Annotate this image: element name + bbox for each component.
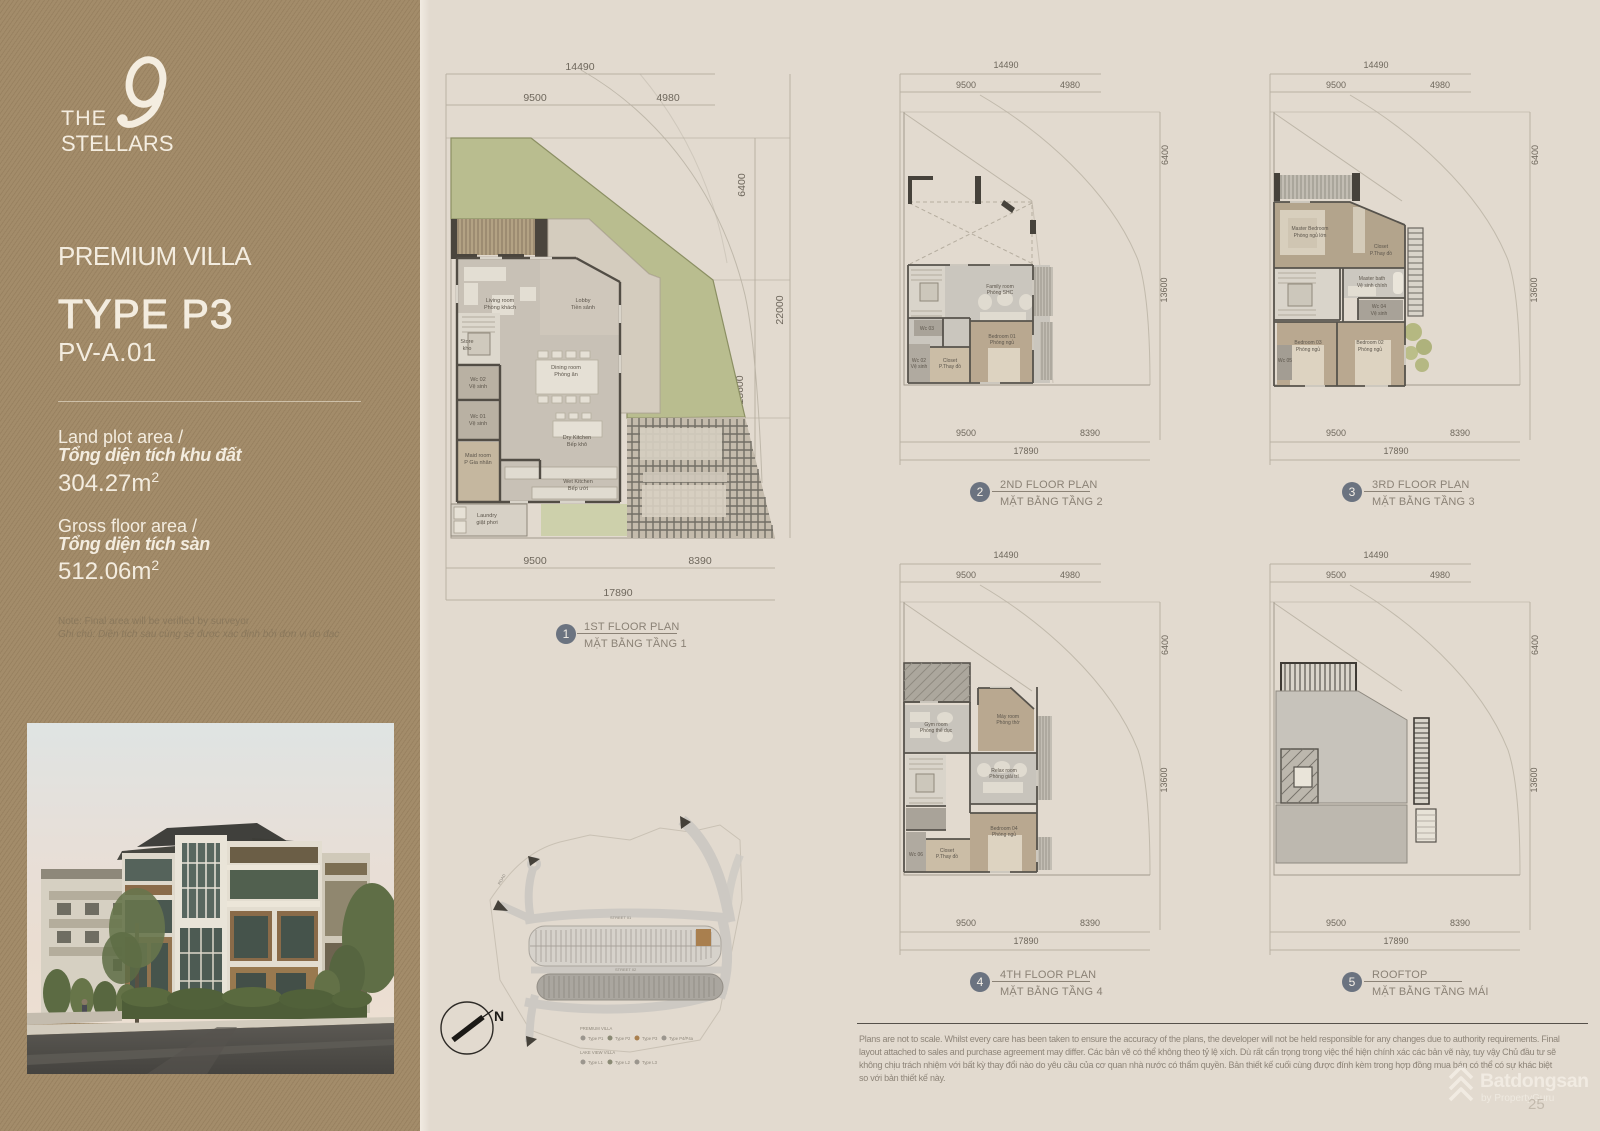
svg-text:Phòng ngủ: Phòng ngủ	[1358, 346, 1382, 353]
svg-text:17890: 17890	[603, 587, 632, 599]
svg-text:14490: 14490	[993, 550, 1018, 560]
svg-text:Bedroom 03: Bedroom 03	[1294, 340, 1321, 346]
svg-text:N: N	[494, 1008, 504, 1024]
svg-text:Vệ sinh: Vệ sinh	[469, 421, 487, 427]
svg-text:9500: 9500	[956, 570, 976, 580]
svg-text:Wc 02: Wc 02	[470, 377, 486, 383]
svg-text:17890: 17890	[1383, 936, 1408, 946]
svg-text:9500: 9500	[956, 918, 976, 928]
svg-text:8390: 8390	[1080, 428, 1100, 438]
svg-text:Type L2: Type L2	[615, 1060, 631, 1065]
svg-text:9500: 9500	[523, 555, 547, 567]
svg-text:Type L3: Type L3	[642, 1060, 658, 1065]
svg-text:Phòng giải trí: Phòng giải trí	[989, 774, 1019, 780]
svg-text:Master bath: Master bath	[1359, 276, 1386, 282]
svg-text:8390: 8390	[688, 555, 712, 567]
svg-text:Living room: Living room	[486, 298, 515, 304]
svg-text:Phòng ngủ: Phòng ngủ	[990, 339, 1014, 346]
svg-text:17890: 17890	[1013, 936, 1038, 946]
svg-text:9500: 9500	[1326, 428, 1346, 438]
svg-text:22000: 22000	[774, 295, 786, 324]
svg-text:STREET 02: STREET 02	[615, 967, 637, 972]
svg-text:14490: 14490	[993, 60, 1018, 70]
svg-text:THE: THE	[61, 106, 107, 130]
svg-text:9500: 9500	[956, 428, 976, 438]
svg-text:kho: kho	[463, 346, 472, 352]
svg-text:Closet: Closet	[1374, 244, 1389, 250]
svg-text:13600: 13600	[1159, 277, 1169, 302]
svg-text:14490: 14490	[1363, 60, 1388, 70]
svg-text:Laundry: Laundry	[477, 513, 497, 519]
svg-text:Bếp ướt: Bếp ướt	[568, 486, 589, 492]
svg-text:6400: 6400	[736, 173, 748, 197]
svg-text:Store: Store	[460, 339, 473, 345]
svg-text:Type P4/P4a: Type P4/P4a	[669, 1036, 694, 1041]
svg-text:PREMIUM VILLA: PREMIUM VILLA	[580, 1026, 613, 1031]
svg-text:4980: 4980	[1060, 570, 1080, 580]
svg-text:Wc 03: Wc 03	[920, 326, 934, 332]
svg-text:4980: 4980	[1060, 80, 1080, 90]
svg-text:Phòng thờ: Phòng thờ	[996, 720, 1020, 726]
svg-text:Vệ sinh: Vệ sinh	[469, 384, 487, 390]
svg-text:Bếp khô: Bếp khô	[567, 442, 587, 448]
svg-text:P.Thay đồ: P.Thay đồ	[1370, 251, 1392, 257]
svg-text:13600: 13600	[1159, 767, 1169, 792]
svg-text:Type P2: Type P2	[615, 1036, 631, 1041]
svg-text:17890: 17890	[1383, 446, 1408, 456]
svg-text:14490: 14490	[1363, 550, 1388, 560]
svg-text:Type P1: Type P1	[588, 1036, 604, 1041]
svg-text:4980: 4980	[1430, 80, 1450, 90]
svg-text:6400: 6400	[1160, 635, 1170, 655]
svg-text:13600: 13600	[1529, 277, 1539, 302]
svg-text:LAKE VIEW VILLA: LAKE VIEW VILLA	[580, 1050, 615, 1055]
svg-text:Phòng ngủ: Phòng ngủ	[1296, 346, 1320, 353]
svg-text:Dry Kitchen: Dry Kitchen	[563, 435, 591, 441]
svg-text:9500: 9500	[1326, 918, 1346, 928]
svg-text:9500: 9500	[523, 92, 547, 104]
svg-text:9500: 9500	[1326, 570, 1346, 580]
svg-text:Wc 04: Wc 04	[1372, 304, 1386, 310]
svg-text:6400: 6400	[1160, 145, 1170, 165]
svg-text:Wc 01: Wc 01	[470, 414, 486, 420]
svg-text:17890: 17890	[1013, 446, 1038, 456]
svg-text:STREET 01: STREET 01	[610, 915, 632, 920]
svg-text:Type L1: Type L1	[588, 1060, 604, 1065]
svg-text:Vệ sinh: Vệ sinh	[911, 364, 928, 370]
svg-text:Batdongsan: Batdongsan	[1480, 1070, 1589, 1092]
svg-text:4980: 4980	[656, 92, 680, 104]
svg-text:9500: 9500	[1326, 80, 1346, 90]
svg-text:Lobby: Lobby	[576, 298, 591, 304]
svg-text:14490: 14490	[565, 61, 594, 73]
svg-text:Maid room: Maid room	[465, 453, 491, 459]
svg-text:Phòng SHC: Phòng SHC	[987, 290, 1014, 296]
svg-text:8390: 8390	[1450, 918, 1470, 928]
svg-text:STELLARS: STELLARS	[61, 131, 174, 156]
svg-text:giặt phơi: giặt phơi	[476, 520, 497, 526]
svg-text:6400: 6400	[1530, 145, 1540, 165]
svg-text:Tiền sảnh: Tiền sảnh	[571, 305, 595, 311]
svg-text:Wc 05: Wc 05	[1278, 358, 1292, 364]
svg-text:13600: 13600	[1529, 767, 1539, 792]
svg-text:P Gia nhân: P Gia nhân	[464, 460, 491, 466]
svg-text:Dining room: Dining room	[551, 365, 581, 371]
svg-text:Wc 06: Wc 06	[909, 852, 923, 858]
svg-text:Phòng khách: Phòng khách	[484, 305, 516, 311]
svg-text:Phòng ngủ: Phòng ngủ	[992, 831, 1016, 838]
svg-text:Phòng ngủ lớn: Phòng ngủ lớn	[1294, 232, 1327, 239]
svg-text:8390: 8390	[1080, 918, 1100, 928]
svg-text:Vệ sinh chính: Vệ sinh chính	[1357, 283, 1388, 289]
svg-text:9500: 9500	[956, 80, 976, 90]
svg-text:P.Thay đồ: P.Thay đồ	[936, 854, 958, 860]
svg-text:Type P3: Type P3	[642, 1036, 658, 1041]
svg-text:Bedroom 02: Bedroom 02	[1356, 340, 1383, 346]
svg-text:Master Bedroom: Master Bedroom	[1292, 226, 1329, 232]
svg-text:Phòng ăn: Phòng ăn	[554, 372, 578, 378]
svg-text:8390: 8390	[1450, 428, 1470, 438]
svg-text:P.Thay đồ: P.Thay đồ	[939, 364, 961, 370]
svg-text:6400: 6400	[1530, 635, 1540, 655]
svg-text:Wet Kitchen: Wet Kitchen	[563, 479, 593, 485]
svg-text:Phòng thể dục: Phòng thể dục	[920, 727, 953, 734]
svg-text:Vệ sinh: Vệ sinh	[1371, 311, 1388, 317]
svg-text:4980: 4980	[1430, 570, 1450, 580]
